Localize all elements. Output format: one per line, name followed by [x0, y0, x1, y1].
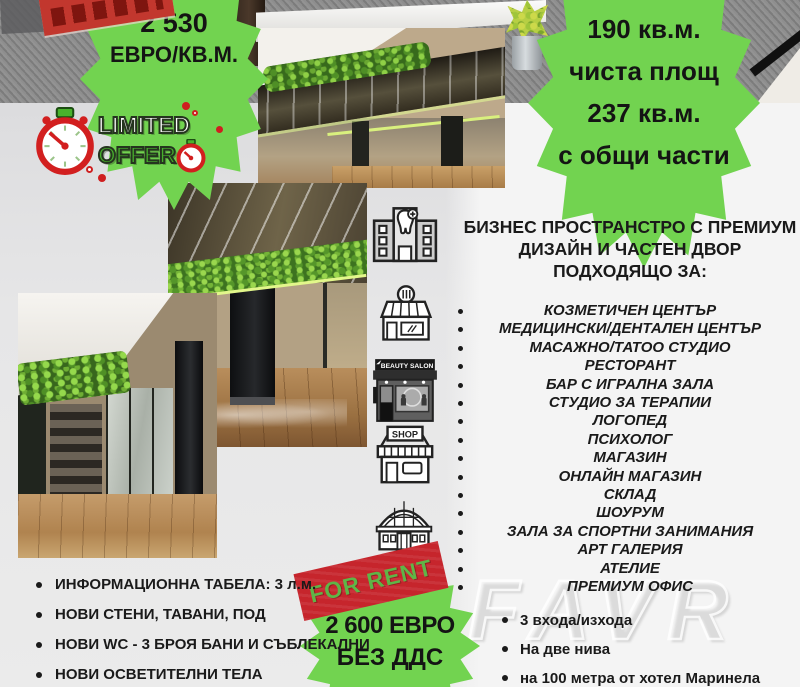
details-list: 3 входа/изхода На две нива на 100 метра … [490, 606, 800, 687]
photo-detail-black-beam [750, 30, 800, 103]
suitable-for-label: АРТ ГАЛЕРИЯ [577, 541, 682, 558]
offer-word: OFFER [98, 142, 176, 169]
bullet-icon [458, 548, 463, 553]
decor-dot [182, 102, 190, 110]
bullet-icon [458, 364, 463, 369]
suitable-for-item: РЕСТОРАНТ [455, 357, 800, 375]
bullet-icon [458, 493, 463, 498]
suitable-for-item: ПСИХОЛОГ [455, 431, 800, 449]
bullet-icon [458, 346, 463, 351]
suitable-for-item: МЕДИЦИНСКИ/ДЕНТАЛЕН ЦЕНТЪР [455, 320, 800, 338]
suitable-for-label: СТУДИО ЗА ТЕРАПИИ [549, 394, 711, 411]
suitable-for-item: КОЗМЕТИЧЕН ЦЕНТЪР [455, 302, 800, 320]
bullet-icon [36, 612, 42, 618]
suitable-for-item: ПРЕМИУМ ОФИС [455, 578, 800, 596]
bullet-icon [458, 438, 463, 443]
suitable-for-item: МАСАЖНО/ТАТОО СТУДИО [455, 339, 800, 357]
suitable-for-label: БАР С ИГРАЛНА ЗАЛА [546, 376, 714, 393]
photo-detail-stairs [50, 404, 102, 505]
suitable-for-label: АТЕЛИЕ [600, 560, 660, 577]
suitable-for-item: ЛОГОПЕД [455, 412, 800, 430]
suitable-for-item: СТУДИО ЗА ТЕРАПИИ [455, 394, 800, 412]
suitable-for-item: АТЕЛИЕ [455, 560, 800, 578]
bullet-icon [458, 419, 463, 424]
stopwatch-small-icon [176, 139, 206, 173]
suitable-for-label: МАСАЖНО/ТАТОО СТУДИО [529, 339, 730, 356]
bullet-icon [458, 585, 463, 590]
bullet-icon [458, 511, 463, 516]
decor-dot [98, 174, 106, 182]
feature-item: ИНФОРМАЦИОННА ТАБЕЛА: 3 л.м. [22, 570, 352, 600]
feature-item: НОВИ ОСВЕТИТЕЛНИ ТЕЛА [22, 660, 352, 687]
suitable-for-label: ЛОГОПЕД [593, 412, 667, 429]
bullet-icon [458, 383, 463, 388]
beauty-salon-sign: BEAUTY SALON [381, 363, 434, 370]
area-badge-line: с общи части [528, 134, 760, 176]
bullet-icon [458, 401, 463, 406]
real-estate-flyer: 2 530 ЕВРО/КВ.М. 190 кв.м.чиста площ237 … [0, 0, 800, 687]
feature-label: НОВИ СТЕНИ, ТАВАНИ, ПОД [55, 606, 266, 623]
area-badge-line: 237 кв.м. [528, 92, 760, 134]
limited-offer-text: LIMITED OFFER [98, 112, 206, 173]
detail-label: на 100 метра от хотел Маринела [520, 670, 760, 687]
suitable-for-label: ОНЛАЙН МАГАЗИН [559, 468, 702, 485]
suitable-for-label: МАГАЗИН [593, 449, 666, 466]
suitable-for-item: ЗАЛА ЗА СПОРТНИ ЗАНИМАНИЯ [455, 523, 800, 541]
area-badge-line: чиста площ [528, 50, 760, 92]
suitable-for-item: ШОУРУМ [455, 504, 800, 522]
suitable-for-item: АРТ ГАЛЕРИЯ [455, 541, 800, 559]
suitable-for-label: РЕСТОРАНТ [585, 357, 676, 374]
decor-dot [192, 110, 198, 116]
suitable-for-label: ПРЕМИУМ ОФИС [567, 578, 693, 595]
suitable-for-label: КОЗМЕТИЧЕН ЦЕНТЪР [544, 302, 716, 319]
suitable-for-label: МЕДИЦИНСКИ/ДЕНТАЛЕН ЦЕНТЪР [499, 320, 761, 337]
clinic-building-icon [370, 198, 440, 264]
suitable-for-item: МАГАЗИН [455, 449, 800, 467]
photo-interior-stairs [18, 293, 217, 558]
detail-label: На две нива [520, 641, 610, 658]
suitable-for-list: КОЗМЕТИЧЕН ЦЕНТЪР МЕДИЦИНСКИ/ДЕНТАЛЕН ЦЕ… [455, 302, 800, 597]
cafe-storefront-icon [374, 282, 438, 348]
detail-label: 3 входа/изхода [520, 612, 632, 629]
shop-storefront-icon: SHOP [372, 423, 438, 487]
beauty-salon-icon: BEAUTY SALON [370, 354, 440, 426]
photo-interior-top [258, 28, 505, 188]
photo-detail-floor [18, 494, 217, 558]
photo-detail-column-base [230, 397, 276, 405]
price-per-sqm-unit: ЕВРО/КВ.М. [80, 40, 268, 70]
suitable-for-item: БАР С ИГРАЛНА ЗАЛА [455, 376, 800, 394]
bullet-icon [36, 582, 42, 588]
features-list: ИНФОРМАЦИОННА ТАБЕЛА: 3 л.м. НОВИ СТЕНИ,… [22, 570, 352, 687]
decor-dot [86, 166, 93, 173]
feature-item: НОВИ WC - 3 БРОЯ БАНИ И СЪБЛЕКАЛНИ [22, 630, 352, 660]
detail-item: На две нива [490, 635, 800, 664]
feature-label: ИНФОРМАЦИОННА ТАБЕЛА: 3 л.м. [55, 576, 316, 593]
suitable-for-label: ШОУРУМ [596, 504, 664, 521]
bullet-icon [458, 530, 463, 535]
bullet-icon [36, 642, 42, 648]
bullet-icon [458, 309, 463, 314]
photo-detail-mirror [106, 388, 174, 494]
suitable-for-label: ПСИХОЛОГ [588, 431, 673, 448]
decor-dot [216, 126, 223, 133]
suitable-for-item: СКЛАД [455, 486, 800, 504]
detail-item: на 100 метра от хотел Маринела [490, 664, 800, 687]
feature-label: НОВИ ОСВЕТИТЕЛНИ ТЕЛА [55, 666, 263, 683]
shop-sign: SHOP [392, 430, 418, 440]
bullet-icon [458, 456, 463, 461]
headline: БИЗНЕС ПРОСТРАНСТРО С ПРЕМИУМ ДИЗАЙН И Ч… [450, 216, 800, 282]
feature-item: НОВИ СТЕНИ, ТАВАНИ, ПОД [22, 600, 352, 630]
bullet-icon [502, 675, 508, 681]
limited-word: LIMITED [98, 112, 206, 139]
suitable-for-label: СКЛАД [604, 486, 657, 503]
detail-item: 3 входа/изхода [490, 606, 800, 635]
bullet-icon [502, 617, 508, 623]
bullet-icon [36, 672, 42, 678]
suitable-for-item: ОНЛАЙН МАГАЗИН [455, 468, 800, 486]
bullet-icon [502, 646, 508, 652]
feature-label: НОВИ WC - 3 БРОЯ БАНИ И СЪБЛЕКАЛНИ [55, 636, 370, 653]
limited-offer-logo: LIMITED OFFER [34, 100, 234, 184]
bullet-icon [458, 567, 463, 572]
bullet-icon [458, 475, 463, 480]
bullet-icon [458, 327, 463, 332]
suitable-for-label: ЗАЛА ЗА СПОРТНИ ЗАНИМАНИЯ [507, 523, 753, 540]
